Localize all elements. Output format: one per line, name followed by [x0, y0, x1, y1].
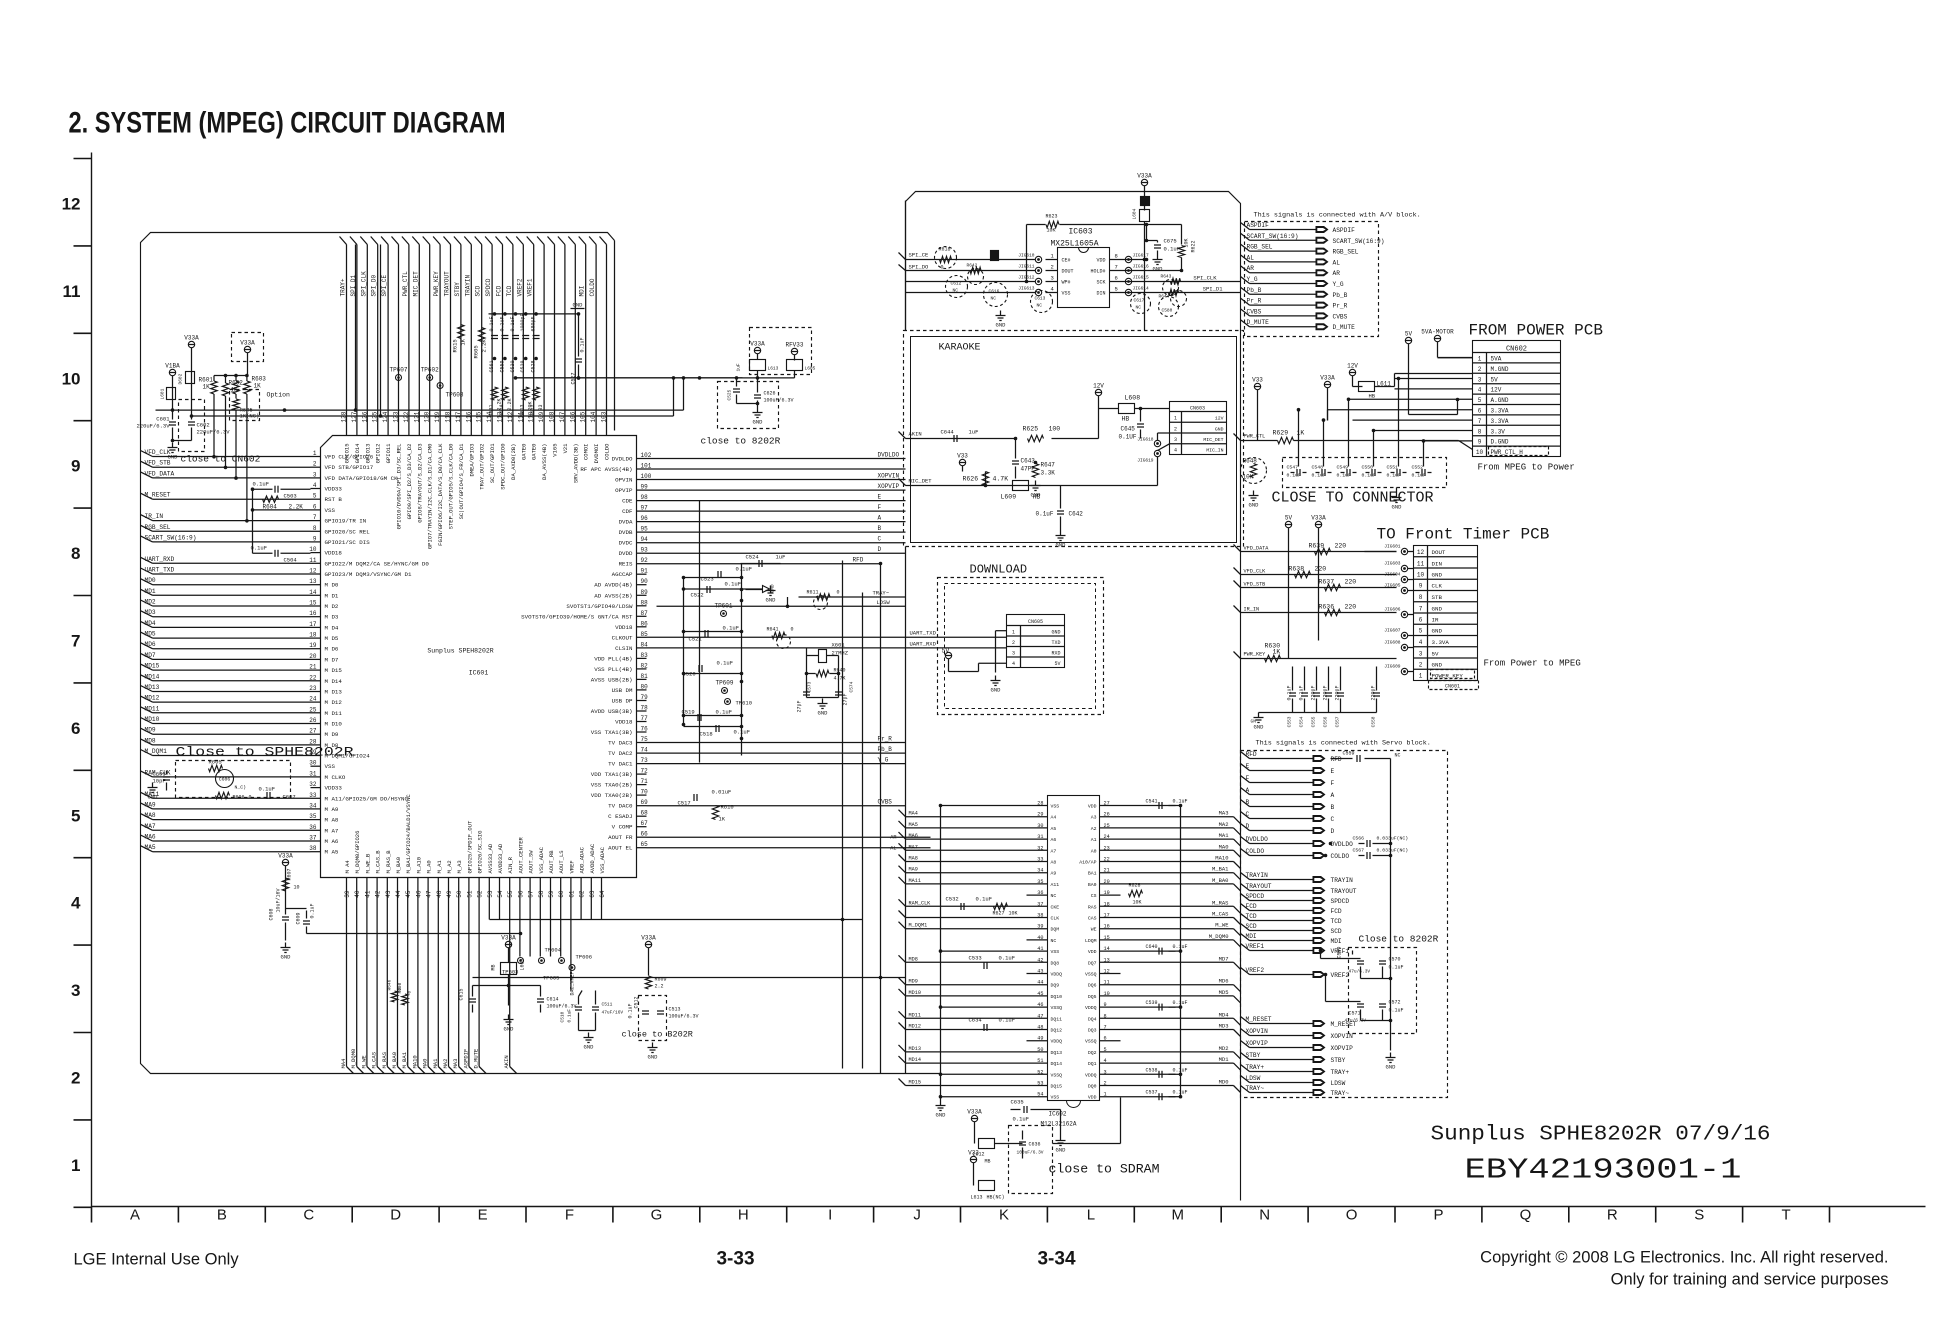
- svg-text:MA9: MA9: [145, 801, 156, 808]
- svg-text:R638: R638: [1289, 566, 1305, 573]
- svg-text:3: 3: [1012, 651, 1015, 657]
- svg-text:M D3: M D3: [325, 614, 339, 621]
- svg-text:GND: GND: [1254, 724, 1265, 731]
- svg-text:B: B: [1331, 804, 1335, 811]
- svg-text:V COMP: V COMP: [612, 824, 633, 831]
- svg-text:R629: R629: [1273, 430, 1289, 437]
- svg-text:XOPVIN: XOPVIN: [1246, 1028, 1269, 1035]
- svg-text:7: 7: [313, 514, 317, 521]
- svg-text:32: 32: [1037, 845, 1043, 851]
- svg-text:VDD33: VDD33: [325, 785, 343, 792]
- svg-text:Option: Option: [267, 392, 291, 399]
- svg-text:MA6: MA6: [145, 834, 156, 841]
- svg-text:GND: GND: [148, 794, 159, 801]
- svg-text:34: 34: [1037, 868, 1043, 874]
- svg-text:MD0: MD0: [145, 577, 156, 584]
- svg-text:47u/6.3V: 47u/6.3V: [1349, 969, 1371, 975]
- svg-text:TRAY~: TRAY~: [1246, 1085, 1265, 1092]
- svg-text:RFV33: RFV33: [785, 342, 803, 349]
- svg-text:1uF: 1uF: [776, 554, 786, 561]
- svg-text:5: 5: [1115, 286, 1118, 293]
- svg-text:A11: A11: [1051, 882, 1060, 888]
- svg-text:59: 59: [548, 890, 555, 898]
- svg-text:M_BA0: M_BA0: [395, 857, 402, 874]
- svg-text:R614: R614: [499, 404, 505, 416]
- svg-text:1: 1: [1478, 356, 1482, 363]
- svg-text:TRAYIN: TRAYIN: [1246, 872, 1269, 879]
- svg-text:C573: C573: [807, 681, 813, 692]
- svg-text:AOUT_LS: AOUT_LS: [558, 850, 565, 874]
- svg-text:GND: GND: [504, 1026, 515, 1033]
- svg-text:DQ10: DQ10: [1051, 994, 1063, 1000]
- svg-text:C570: C570: [1389, 957, 1401, 963]
- svg-text:C ESADJ: C ESADJ: [608, 813, 632, 820]
- svg-text:HOLD#: HOLD#: [1090, 269, 1105, 275]
- svg-text:DOUT: DOUT: [1432, 549, 1446, 556]
- svg-text:IC602: IC602: [1049, 1111, 1067, 1118]
- svg-text:C634: C634: [969, 1017, 983, 1024]
- svg-text:1uF: 1uF: [736, 363, 742, 371]
- svg-text:C530: C530: [510, 360, 516, 372]
- svg-text:R648: R648: [1243, 458, 1258, 465]
- svg-text:15: 15: [1104, 935, 1110, 941]
- svg-text:XOPVIP: XOPVIP: [878, 483, 900, 490]
- svg-text:TP604: TP604: [545, 947, 562, 954]
- svg-text:79: 79: [641, 694, 649, 701]
- svg-text:0.1uF: 0.1uF: [253, 481, 270, 488]
- svg-text:DQ1: DQ1: [1088, 1061, 1097, 1067]
- svg-text:E: E: [1246, 763, 1250, 770]
- svg-text:R618: R618: [939, 247, 951, 253]
- svg-text:DQ4: DQ4: [1088, 1016, 1097, 1022]
- svg-text:VDD33: VDD33: [325, 486, 343, 493]
- svg-text:6: 6: [1419, 617, 1423, 624]
- svg-text:MD1: MD1: [145, 588, 156, 595]
- svg-text:C518: C518: [700, 731, 713, 738]
- svg-text:COLDO: COLDO: [1246, 848, 1265, 855]
- svg-text:DVDD: DVDD: [619, 550, 633, 557]
- svg-text:RAM_CLK: RAM_CLK: [909, 900, 932, 906]
- svg-text:33: 33: [1037, 857, 1043, 863]
- svg-text:TO Front Timer PCB: TO Front Timer PCB: [1377, 526, 1550, 544]
- svg-text:SPDC_OUT/GPIO0: SPDC_OUT/GPIO0: [500, 444, 507, 490]
- svg-text:REIS: REIS: [619, 561, 633, 568]
- svg-text:NC: NC: [1395, 753, 1401, 759]
- svg-text:M_RESET: M_RESET: [145, 492, 171, 499]
- svg-text:0.1uF: 0.1uF: [489, 316, 495, 331]
- svg-text:V33: V33: [957, 453, 968, 460]
- svg-text:GND: GND: [1249, 502, 1260, 509]
- svg-text:MA4: MA4: [909, 811, 918, 817]
- svg-text:AD AVSS(2B): AD AVSS(2B): [594, 592, 632, 599]
- svg-text:COLDO: COLDO: [1331, 853, 1350, 860]
- svg-text:76: 76: [641, 726, 649, 733]
- svg-text:TRAYIN: TRAYIN: [1331, 877, 1354, 884]
- svg-text:M D11: M D11: [325, 710, 343, 717]
- svg-text:GPIO12: GPIO12: [375, 444, 382, 464]
- svg-text:49: 49: [446, 890, 453, 898]
- svg-text:0.1uF: 0.1uF: [723, 625, 740, 632]
- svg-text:16: 16: [1104, 924, 1110, 930]
- svg-text:VDD PLL(4B): VDD PLL(4B): [594, 655, 632, 662]
- svg-text:3: 3: [1104, 1069, 1107, 1075]
- svg-text:M_DQM1: M_DQM1: [909, 923, 928, 929]
- svg-text:TP608: TP608: [446, 392, 464, 399]
- svg-text:MB: MB: [491, 964, 497, 970]
- svg-text:B: B: [878, 525, 882, 532]
- svg-text:JIG614: JIG614: [1133, 286, 1150, 292]
- svg-text:100uF/6.3V: 100uF/6.3V: [764, 398, 794, 404]
- svg-text:TCD: TCD: [506, 285, 513, 296]
- svg-text:9: 9: [1478, 439, 1482, 446]
- svg-text:DQ11: DQ11: [1051, 1016, 1063, 1022]
- svg-text:R627: R627: [993, 911, 1005, 917]
- svg-text:50: 50: [456, 890, 463, 898]
- svg-text:5V: 5V: [1491, 376, 1499, 383]
- svg-text:VSS: VSS: [325, 763, 336, 770]
- svg-text:GPIO26/SC_SIG: GPIO26/SC_SIG: [477, 831, 484, 874]
- svg-text:C517: C517: [678, 800, 691, 807]
- svg-text:0.1uF: 0.1uF: [1013, 1116, 1030, 1123]
- svg-text:39: 39: [344, 890, 351, 898]
- svg-text:M A6: M A6: [325, 838, 339, 845]
- svg-text:A.GND: A.GND: [1491, 397, 1509, 404]
- svg-text:A8: A8: [1051, 860, 1057, 866]
- svg-text:GATE0: GATE0: [531, 444, 538, 461]
- svg-text:SRV_AVDD(3B): SRV_AVDD(3B): [572, 444, 579, 484]
- svg-text:8: 8: [1478, 428, 1482, 435]
- svg-text:GND: GND: [936, 1112, 947, 1119]
- svg-text:GPIO22/M DQM2/CA SE/HYNC/GM D0: GPIO22/M DQM2/CA SE/HYNC/GM D0: [325, 560, 430, 567]
- svg-text:0.1uF: 0.1uF: [717, 660, 734, 667]
- svg-text:AOUT_CENTER: AOUT_CENTER: [517, 836, 524, 873]
- svg-text:4: 4: [1419, 639, 1423, 646]
- svg-text:JIG601: JIG601: [1384, 544, 1401, 550]
- svg-text:SPI_D1: SPI_D1: [1203, 286, 1224, 293]
- svg-text:A9: A9: [1051, 871, 1057, 877]
- svg-text:0: 0: [837, 590, 840, 596]
- svg-text:MD6: MD6: [145, 641, 156, 648]
- svg-text:4.7K: 4.7K: [993, 476, 1009, 483]
- svg-text:M D5: M D5: [325, 635, 339, 642]
- svg-text:41: 41: [1037, 946, 1043, 952]
- svg-text:25: 25: [1104, 823, 1110, 829]
- svg-text:8: 8: [1104, 1013, 1107, 1019]
- svg-text:10: 10: [309, 546, 317, 553]
- svg-text:E: E: [878, 494, 882, 501]
- svg-text:0.1UF: 0.1UF: [1119, 434, 1137, 441]
- svg-text:RAS: RAS: [1088, 904, 1097, 910]
- svg-text:SCART_SW(16:9): SCART_SW(16:9): [145, 534, 197, 541]
- svg-text:C571: C571: [1349, 1011, 1361, 1017]
- svg-text:86: 86: [641, 620, 649, 627]
- svg-text:GND: GND: [1215, 426, 1224, 432]
- svg-text:2: 2: [1051, 264, 1054, 271]
- svg-text:C513: C513: [669, 1007, 681, 1013]
- svg-text:C635: C635: [1011, 1099, 1024, 1106]
- svg-text:M CLKO: M CLKO: [325, 774, 346, 781]
- svg-text:5V: 5V: [1285, 515, 1293, 522]
- svg-text:CLK: CLK: [1051, 916, 1060, 922]
- svg-text:R636: R636: [1319, 604, 1335, 611]
- svg-text:VREF2: VREF2: [516, 278, 523, 296]
- svg-text:R641: R641: [767, 627, 779, 633]
- svg-text:MD9: MD9: [145, 727, 156, 734]
- svg-text:M_DQM0/GPIO26: M_DQM0/GPIO26: [354, 831, 361, 874]
- svg-text:VDDQ: VDDQ: [1085, 1005, 1097, 1011]
- svg-text:GPIO14: GPIO14: [354, 443, 361, 464]
- svg-text:HB: HB: [1122, 416, 1130, 423]
- svg-text:0.1uF: 0.1uF: [1362, 473, 1377, 479]
- svg-text:VDD TXA0(2B): VDD TXA0(2B): [591, 792, 633, 799]
- svg-text:R603: R603: [252, 376, 267, 383]
- svg-text:R639: R639: [1309, 543, 1325, 550]
- svg-text:GND: GND: [1432, 572, 1443, 579]
- svg-text:C554: C554: [1299, 716, 1305, 727]
- svg-text:M A5: M A5: [325, 849, 339, 856]
- svg-text:R608: R608: [397, 982, 403, 993]
- svg-text:VDD TXA1(3B): VDD TXA1(3B): [591, 771, 633, 778]
- svg-text:SPDCD: SPDCD: [1331, 898, 1350, 905]
- svg-text:R622: R622: [1191, 240, 1197, 252]
- svg-text:0.1uF: 0.1uF: [580, 337, 586, 352]
- svg-text:C547: C547: [1287, 465, 1299, 471]
- svg-text:4.7K: 4.7K: [834, 676, 846, 682]
- svg-text:39: 39: [1037, 924, 1043, 930]
- svg-text:7: 7: [1104, 1025, 1107, 1031]
- svg-text:R623: R623: [1046, 214, 1058, 220]
- svg-text:AR: AR: [1247, 265, 1255, 272]
- svg-text:TRAYOUT: TRAYOUT: [1246, 883, 1272, 890]
- svg-text:67: 67: [641, 820, 649, 827]
- svg-text:R626: R626: [963, 476, 979, 483]
- svg-text:27: 27: [1104, 801, 1110, 807]
- svg-text:TRAY_OUT/GPIO2: TRAY_OUT/GPIO2: [479, 444, 486, 490]
- svg-text:10K: 10K: [1009, 911, 1018, 917]
- svg-text:R611: R611: [807, 590, 819, 596]
- svg-text:12V: 12V: [1491, 387, 1502, 394]
- svg-text:1K: 1K: [1297, 430, 1305, 437]
- svg-text:C569: C569: [1337, 946, 1343, 958]
- svg-text:VDDQ: VDDQ: [1085, 1072, 1097, 1078]
- svg-text:V33A: V33A: [1137, 173, 1152, 180]
- svg-text:F: F: [1246, 775, 1250, 782]
- svg-text:R605: R605: [209, 759, 222, 766]
- svg-text:AOUT_SW: AOUT_SW: [528, 850, 535, 874]
- svg-text:AR: AR: [890, 835, 896, 841]
- svg-text:GND: GND: [1153, 266, 1164, 273]
- svg-text:Y_G: Y_G: [1247, 276, 1258, 283]
- svg-text:MD2: MD2: [145, 599, 156, 606]
- svg-text:AIN_R: AIN_R: [507, 856, 514, 873]
- svg-text:FROM POWER PCB: FROM POWER PCB: [1469, 322, 1603, 340]
- svg-text:3: 3: [1419, 650, 1423, 657]
- svg-text:VDD: VDD: [1088, 949, 1097, 955]
- svg-text:A10/AP: A10/AP: [1079, 860, 1096, 866]
- svg-text:MA7: MA7: [145, 823, 156, 830]
- svg-text:CE#: CE#: [1062, 258, 1071, 264]
- svg-text:1: 1: [1051, 253, 1055, 260]
- svg-text:TRAY+: TRAY+: [1331, 1069, 1350, 1076]
- svg-text:AVSS USB(2B): AVSS USB(2B): [591, 676, 633, 683]
- svg-text:UART_RXD: UART_RXD: [145, 556, 175, 563]
- svg-text:VFD_DATA: VFD_DATA: [1244, 546, 1270, 552]
- svg-text:M_A0: M_A0: [426, 860, 433, 873]
- svg-text:C525: C525: [727, 389, 733, 400]
- svg-text:MD4: MD4: [145, 620, 156, 627]
- svg-text:58: 58: [538, 890, 545, 898]
- svg-text:5: 5: [71, 806, 80, 825]
- svg-text:VREF: VREF: [568, 860, 575, 873]
- svg-text:C553: C553: [1287, 716, 1293, 727]
- svg-text:R631: R631: [489, 404, 495, 416]
- svg-text:V33A: V33A: [278, 853, 293, 860]
- svg-text:2: 2: [1478, 366, 1482, 373]
- svg-text:M_RAS: M_RAS: [381, 1051, 388, 1068]
- svg-text:31: 31: [1037, 834, 1043, 840]
- svg-text:0.1uF: 0.1uF: [999, 955, 1016, 962]
- svg-text:22: 22: [1104, 857, 1110, 863]
- svg-text:6: 6: [1478, 408, 1482, 415]
- svg-text:KARAOKE: KARAOKE: [939, 343, 981, 354]
- svg-text:9: 9: [71, 457, 80, 476]
- svg-text:V33A: V33A: [184, 335, 199, 342]
- svg-text:IR: IR: [1432, 617, 1439, 624]
- svg-text:PWR_KEY: PWR_KEY: [433, 271, 440, 297]
- svg-text:DQ13: DQ13: [1051, 1050, 1063, 1056]
- svg-text:CN601: CN601: [1445, 684, 1460, 690]
- svg-text:1K: 1K: [203, 384, 211, 391]
- svg-text:L601: L601: [160, 388, 166, 399]
- svg-text:OPVIP: OPVIP: [615, 487, 633, 494]
- svg-text:C580: C580: [1162, 308, 1173, 314]
- svg-text:60: 60: [558, 890, 565, 898]
- svg-text:R605: R605: [473, 345, 480, 358]
- svg-text:MA5: MA5: [909, 822, 918, 828]
- svg-text:77: 77: [641, 715, 649, 722]
- svg-text:L604: L604: [1132, 208, 1138, 219]
- svg-text:JIG612: JIG612: [1018, 275, 1035, 281]
- svg-text:49: 49: [1037, 1036, 1043, 1042]
- svg-text:V165: V165: [552, 444, 559, 457]
- svg-text:220uF/6.3V: 220uF/6.3V: [197, 429, 231, 436]
- svg-text:MA0: MA0: [422, 1059, 429, 1069]
- svg-text:0.1uF: 0.1uF: [1173, 799, 1188, 805]
- svg-text:63: 63: [589, 890, 596, 898]
- svg-text:MA2: MA2: [442, 1059, 449, 1069]
- svg-text:24: 24: [1104, 834, 1110, 840]
- svg-text:C612: C612: [951, 281, 962, 287]
- svg-text:7: 7: [1419, 605, 1423, 612]
- svg-text:27pF: 27pF: [843, 693, 849, 705]
- svg-text:A2: A2: [1091, 826, 1097, 832]
- svg-text:R613: R613: [520, 404, 526, 416]
- svg-text:29: 29: [1037, 812, 1043, 818]
- svg-text:C503: C503: [284, 493, 297, 500]
- svg-text:V33A: V33A: [641, 935, 656, 942]
- svg-text:83: 83: [641, 652, 649, 659]
- svg-text:D_MUTE: D_MUTE: [1333, 324, 1356, 331]
- svg-text:UART_TXD: UART_TXD: [145, 567, 175, 574]
- svg-text:A6: A6: [1051, 837, 1057, 843]
- svg-text:2.2: 2.2: [655, 984, 664, 990]
- svg-text:Pr_R: Pr_R: [1333, 303, 1348, 310]
- svg-text:N_C): N_C): [235, 785, 247, 791]
- svg-text:6: 6: [1104, 1036, 1107, 1042]
- svg-text:10: 10: [62, 369, 81, 388]
- svg-text:Pb_B: Pb_B: [1247, 287, 1262, 294]
- svg-text:MA3: MA3: [452, 1059, 459, 1069]
- svg-text:VFD DATA/GPIO18/GM CK: VFD DATA/GPIO18/GM CK: [325, 475, 399, 482]
- svg-text:MD0: MD0: [1219, 1079, 1229, 1086]
- svg-text:TV DAC3: TV DAC3: [608, 740, 633, 747]
- svg-text:0.033uF(NC): 0.033uF(NC): [1377, 836, 1409, 842]
- svg-text:CN602: CN602: [1506, 346, 1527, 354]
- svg-text:close to 8202R: close to 8202R: [701, 436, 781, 447]
- svg-text:SCD: SCD: [1246, 923, 1257, 930]
- svg-text:H: H: [738, 1207, 749, 1224]
- svg-text:MA1: MA1: [1219, 832, 1230, 839]
- svg-text:0: 0: [407, 991, 413, 994]
- svg-text:UART_TXD: UART_TXD: [910, 630, 937, 637]
- svg-text:220: 220: [1345, 579, 1357, 586]
- svg-text:TV DAC0: TV DAC0: [608, 803, 633, 810]
- svg-text:SPDCD: SPDCD: [485, 278, 492, 296]
- svg-text:53: 53: [487, 890, 494, 898]
- svg-text:VDD18: VDD18: [325, 550, 343, 557]
- svg-text:0.1uF: 0.1uF: [716, 709, 733, 716]
- svg-text:DIN: DIN: [1432, 560, 1443, 567]
- svg-text:VREF2: VREF2: [1331, 972, 1350, 979]
- svg-text:NC: NC: [1136, 305, 1142, 311]
- svg-text:0.1uF: 0.1uF: [1299, 686, 1305, 701]
- svg-text:VFD STB/GPIO17: VFD STB/GPIO17: [325, 464, 374, 471]
- svg-text:M_WE_B: M_WE_B: [364, 853, 371, 874]
- svg-text:V33A: V33A: [750, 341, 765, 348]
- svg-text:DOWNLOAD: DOWNLOAD: [970, 563, 1028, 577]
- svg-text:MD10: MD10: [909, 990, 921, 996]
- svg-text:COLDO: COLDO: [589, 278, 596, 296]
- svg-text:M_BA0: M_BA0: [391, 1052, 398, 1069]
- svg-text:V33A: V33A: [1311, 515, 1326, 522]
- svg-text:JIG605: JIG605: [1384, 583, 1401, 589]
- svg-text:11: 11: [1104, 980, 1110, 986]
- svg-text:6: 6: [313, 503, 317, 510]
- svg-text:21: 21: [1104, 868, 1110, 874]
- svg-text:TP606: TP606: [576, 954, 593, 961]
- svg-text:VSS_ADAC: VSS_ADAC: [538, 846, 545, 873]
- svg-text:V33A: V33A: [967, 1109, 982, 1116]
- svg-text:From Power to MPEG: From Power to MPEG: [1484, 659, 1581, 669]
- svg-text:1: 1: [1104, 1092, 1107, 1098]
- svg-text:68: 68: [641, 810, 649, 817]
- svg-text:10K: 10K: [1047, 228, 1056, 234]
- svg-text:VSS: VSS: [1051, 949, 1060, 955]
- svg-text:5VA-MOTOR: 5VA-MOTOR: [1421, 329, 1454, 336]
- svg-text:3: 3: [1051, 275, 1054, 282]
- svg-text:R642: R642: [967, 263, 978, 269]
- svg-text:C626: C626: [764, 391, 776, 397]
- svg-text:GND: GND: [991, 687, 1002, 694]
- svg-text:Close to 8202R: Close to 8202R: [1359, 934, 1439, 945]
- svg-text:64: 64: [599, 890, 606, 898]
- svg-text:7: 7: [1478, 418, 1482, 425]
- svg-text:CLK: CLK: [1432, 583, 1443, 590]
- svg-text:DQ0: DQ0: [1088, 1084, 1097, 1090]
- svg-text:AL: AL: [890, 846, 896, 852]
- svg-text:M_DQM0: M_DQM0: [1209, 933, 1229, 940]
- svg-text:C574: C574: [849, 681, 855, 692]
